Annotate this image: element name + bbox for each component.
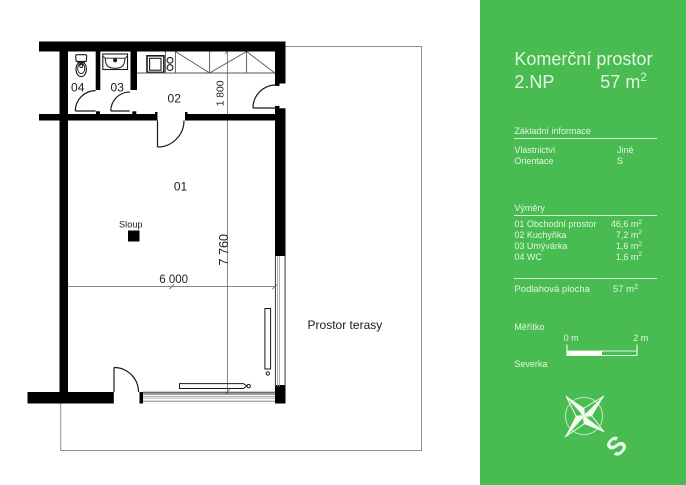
svg-text:7 760: 7 760 bbox=[217, 234, 231, 266]
svg-text:2 m: 2 m bbox=[633, 333, 648, 343]
svg-text:1 800: 1 800 bbox=[216, 80, 227, 106]
svg-text:03: 03 bbox=[111, 80, 125, 94]
svg-text:Sloup: Sloup bbox=[119, 220, 143, 230]
svg-text:S: S bbox=[599, 429, 632, 462]
svg-text:Prostor terasy: Prostor terasy bbox=[308, 318, 383, 332]
svg-text:6 000: 6 000 bbox=[159, 274, 188, 286]
svg-text:0 m: 0 m bbox=[564, 333, 579, 343]
svg-text:01: 01 bbox=[174, 180, 188, 194]
svg-text:04: 04 bbox=[71, 80, 85, 94]
svg-text:02: 02 bbox=[168, 92, 182, 106]
